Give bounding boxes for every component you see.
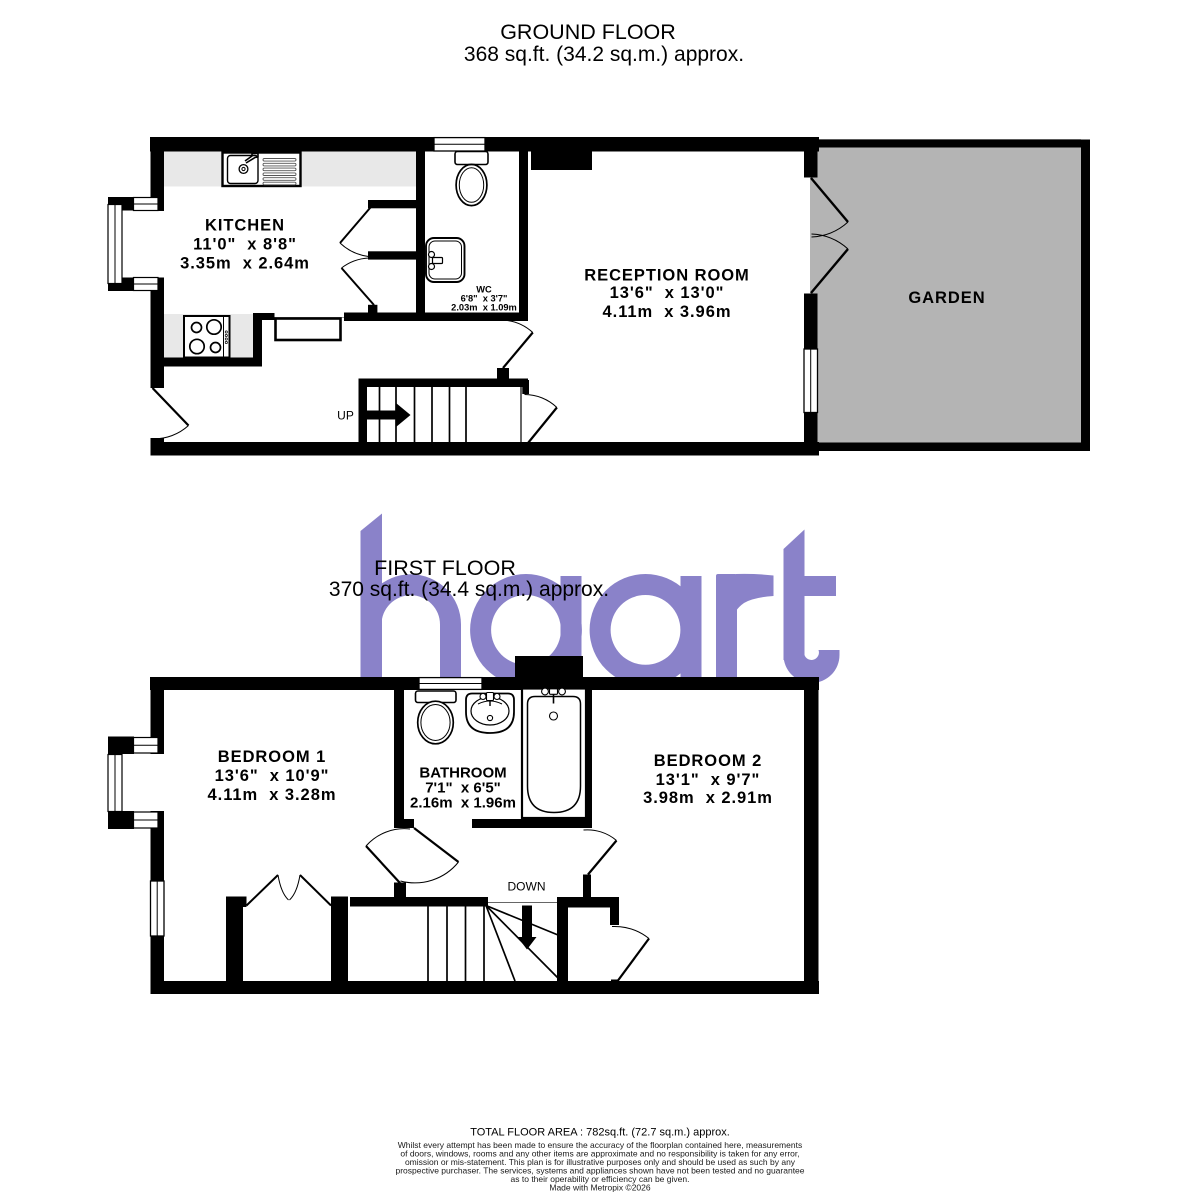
svg-text:368 sq.ft. (34.2 sq.m.) approx: 368 sq.ft. (34.2 sq.m.) approx. xyxy=(464,43,744,66)
svg-text:2.03m x 1.09m: 2.03m x 1.09m xyxy=(451,303,517,313)
svg-text:4.11m x 3.96m: 4.11m x 3.96m xyxy=(603,303,732,321)
svg-text:GROUND FLOOR: GROUND FLOOR xyxy=(500,20,676,44)
svg-text:TOTAL FLOOR AREA : 782sq.ft. (: TOTAL FLOOR AREA : 782sq.ft. (72.7 sq.m.… xyxy=(470,1127,730,1139)
svg-text:13'6" x 10'9": 13'6" x 10'9" xyxy=(215,767,330,785)
svg-text:2.16m x 1.96m: 2.16m x 1.96m xyxy=(410,795,516,812)
svg-text:KITCHEN: KITCHEN xyxy=(205,217,285,235)
svg-text:3.35m x 2.64m: 3.35m x 2.64m xyxy=(180,255,310,273)
svg-text:UP: UP xyxy=(337,409,354,423)
svg-text:RECEPTION ROOM: RECEPTION ROOM xyxy=(584,267,749,285)
svg-text:3.98m x 2.91m: 3.98m x 2.91m xyxy=(643,789,773,807)
svg-text:BEDROOM 1: BEDROOM 1 xyxy=(218,748,326,766)
svg-text:13'6" x 13'0": 13'6" x 13'0" xyxy=(610,284,725,302)
svg-text:DOWN: DOWN xyxy=(508,880,546,894)
svg-text:370 sq.ft. (34.4 sq.m.) approx: 370 sq.ft. (34.4 sq.m.) approx. xyxy=(329,578,609,601)
svg-text:11'0" x 8'8": 11'0" x 8'8" xyxy=(193,236,297,254)
svg-text:Made with Metropix ©2026: Made with Metropix ©2026 xyxy=(549,1183,651,1193)
svg-text:GARDEN: GARDEN xyxy=(908,289,985,307)
svg-text:4.11m x 3.28m: 4.11m x 3.28m xyxy=(208,786,337,804)
svg-text:FIRST FLOOR: FIRST FLOOR xyxy=(374,556,516,580)
svg-text:13'1" x 9'7": 13'1" x 9'7" xyxy=(656,771,761,789)
svg-text:BEDROOM 2: BEDROOM 2 xyxy=(654,752,762,770)
